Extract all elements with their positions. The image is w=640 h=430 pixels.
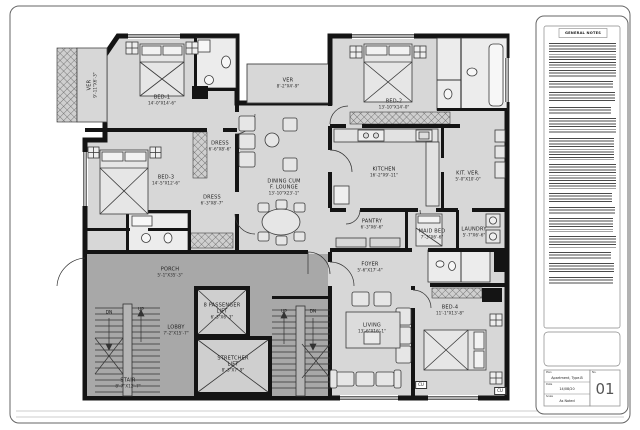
- plan-field-value: Apartment, Type-B: [551, 376, 583, 380]
- notes-text-block: [549, 43, 616, 288]
- floor-plan-drawing: [0, 0, 640, 430]
- room-label-bed-1: BED-1 14'-0"X14'-6": [148, 94, 176, 105]
- room-label-living: LIVING 13'-6"X16'-1": [358, 322, 386, 333]
- room-label-dress-1: DRESS 6'-6"X8'-6": [209, 140, 232, 151]
- room-label-kitchen: KITCHEN 16'-2"X9'-11": [370, 166, 398, 177]
- scale-field-value: As Noted: [559, 399, 574, 403]
- room-label-dining: DINING CUM F. LOUNGE 13'-10"X23'-1": [267, 178, 300, 195]
- room-label-passenger-lift: 8 PASSENGER LIFT 6'-3"X6'-3": [204, 302, 241, 319]
- room-label-stretcher-lift: STRETCHER LIFT 8'-3"X7'-9": [217, 355, 248, 372]
- room-label-kitchen-veranda: KIT. VER. 5'-0"X10'-0": [455, 170, 480, 181]
- room-label-dress-2: DRESS 6'-3"X8'-7": [201, 194, 224, 205]
- drawing-sheet: BED-1 14'-0"X14'-6" BED-2 13'-10"X14'-0"…: [0, 0, 640, 430]
- room-label-bed-3: BED-3 14'-5"X12'-6": [152, 174, 180, 185]
- room-label-lobby: LOBBY 7'-2"X15'-7": [163, 324, 188, 335]
- room-label-porch: PORCH 5'-1"X35'-3": [157, 266, 182, 277]
- cu-marker-2: CU: [494, 387, 506, 395]
- stair-up-label-right: UP: [281, 310, 287, 315]
- room-label-foyer: FOYER 5'-6"X17'-4": [357, 261, 382, 272]
- room-label-pantry: PANTRY 6'-3"X6'-6": [361, 218, 384, 229]
- notes-title: GENERAL NOTES: [565, 31, 601, 35]
- dining-table: [258, 200, 305, 245]
- plan-field-label: Plan: [546, 371, 552, 374]
- sheet-number: 01: [595, 380, 614, 398]
- room-label-veranda-top: VER 8'-2"X4'-9": [277, 77, 300, 88]
- stair-dn-label-right: DN: [310, 310, 317, 315]
- room-label-maid-bed: MAID BED 7'-3"X6'-6": [419, 228, 446, 239]
- room-label-veranda-left: VER 9'-11"X6'-3": [86, 72, 97, 97]
- room-label-stair: STAIR 8'-7"X12'-7": [115, 377, 140, 388]
- date-field-label: Date: [546, 383, 552, 386]
- stair-up-label: UP: [138, 308, 144, 313]
- stair-dn-label: DN: [106, 311, 113, 316]
- scale-field-label: Scale: [546, 395, 553, 398]
- cu-marker-1: CU: [415, 381, 427, 389]
- kitchen-veranda-appliances: [495, 130, 505, 178]
- room-label-bed-4: BED-4 11'-1"X13'-8": [436, 304, 464, 315]
- room-label-bed-2: BED-2 13'-10"X14'-0": [379, 98, 410, 109]
- date-field-value: 14/08/20: [559, 387, 574, 391]
- room-label-laundry: LAUNDRY 5'-7"X6'-6": [461, 226, 486, 237]
- sheet-field-label: No.: [592, 371, 596, 374]
- veranda-left: [57, 48, 107, 122]
